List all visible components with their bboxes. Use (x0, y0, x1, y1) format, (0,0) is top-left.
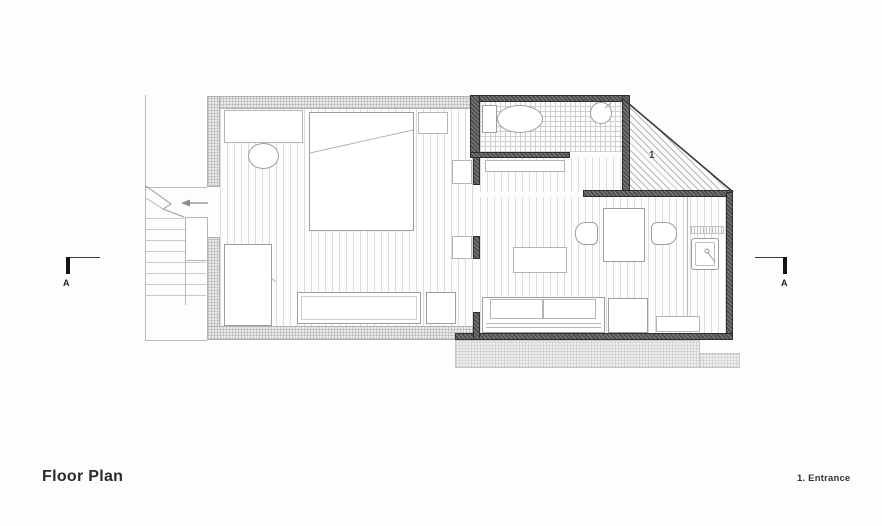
side-unit (426, 292, 456, 324)
stair-step (145, 240, 185, 241)
entrance-number-label: 1 (649, 150, 655, 161)
sofa-cushion-right (543, 299, 596, 319)
living-wall-bottom (455, 333, 733, 340)
stair-bottom-line (145, 340, 207, 341)
wall-pier-upper (452, 160, 472, 184)
sideboard-inner-line (301, 296, 417, 320)
kitchen-sink (691, 238, 719, 270)
side-table (656, 316, 700, 332)
stair-landing-line (145, 187, 207, 188)
bathroom-bench (485, 160, 565, 172)
toilet-bowl (497, 105, 543, 133)
sofa-base-line (486, 327, 601, 328)
stair-break-line-2 (146, 198, 163, 209)
stair-step (145, 273, 206, 274)
section-label-left: A (63, 278, 70, 288)
bedroom-wall-left-lower (207, 237, 220, 340)
sofa-cushion-left (490, 299, 543, 319)
bedroom-wall-top (207, 96, 473, 109)
stair-step (145, 218, 185, 219)
desk (224, 110, 303, 143)
stair-step (145, 262, 206, 263)
stair-step (145, 284, 206, 285)
stair-step (145, 229, 185, 230)
section-label-right: A (781, 278, 788, 288)
stair-break-line (146, 186, 184, 217)
section-cut-bar (66, 257, 70, 274)
section-cut-bar (783, 257, 787, 274)
wardrobe (224, 244, 272, 326)
stair-step (145, 295, 206, 296)
floor-plan-drawing: 1 A A (0, 0, 882, 526)
living-wall-top (583, 190, 733, 197)
stair-shaft-left-edge (145, 95, 146, 340)
nightstand (418, 112, 448, 134)
living-wall-right (726, 192, 733, 340)
bed (309, 112, 414, 231)
terrace-strip-step (699, 353, 740, 368)
stair-step (145, 251, 185, 252)
bathroom-sink (590, 102, 612, 124)
dining-chair-left (575, 222, 598, 245)
section-cut-line (755, 257, 784, 258)
legend-entrance: 1. Entrance (797, 473, 850, 484)
kitchen-drainer (690, 226, 724, 234)
floor-plan-title: Floor Plan (42, 468, 123, 486)
dining-chair-right (651, 222, 677, 245)
desk-chair (248, 143, 279, 169)
stair-arrow-head (181, 200, 190, 207)
stair-closet (185, 217, 208, 261)
section-cut-line (70, 257, 100, 258)
bedroom-wall-bottom (207, 326, 473, 340)
divider-wall-middle (473, 236, 480, 259)
wall-pier-lower (452, 236, 472, 259)
bathroom-wall-left (470, 95, 480, 158)
bathroom-wall-bottom (470, 152, 570, 158)
bathroom-wall-top (470, 95, 630, 102)
toilet-tank (482, 105, 497, 133)
entrance-hatch (622, 98, 733, 192)
terrace-strip (455, 340, 700, 368)
kitchen-counter-edge (687, 197, 688, 330)
kitchen-sink-basin (695, 242, 715, 266)
sofa-base-line (486, 323, 601, 324)
coffee-table (513, 247, 567, 273)
dining-table (603, 208, 645, 262)
armchair (608, 298, 648, 333)
bathroom-wall-right (622, 95, 630, 192)
living-wall-left-corner (473, 312, 480, 340)
sideboard (297, 292, 421, 324)
bedroom-wall-left-upper (207, 96, 220, 187)
